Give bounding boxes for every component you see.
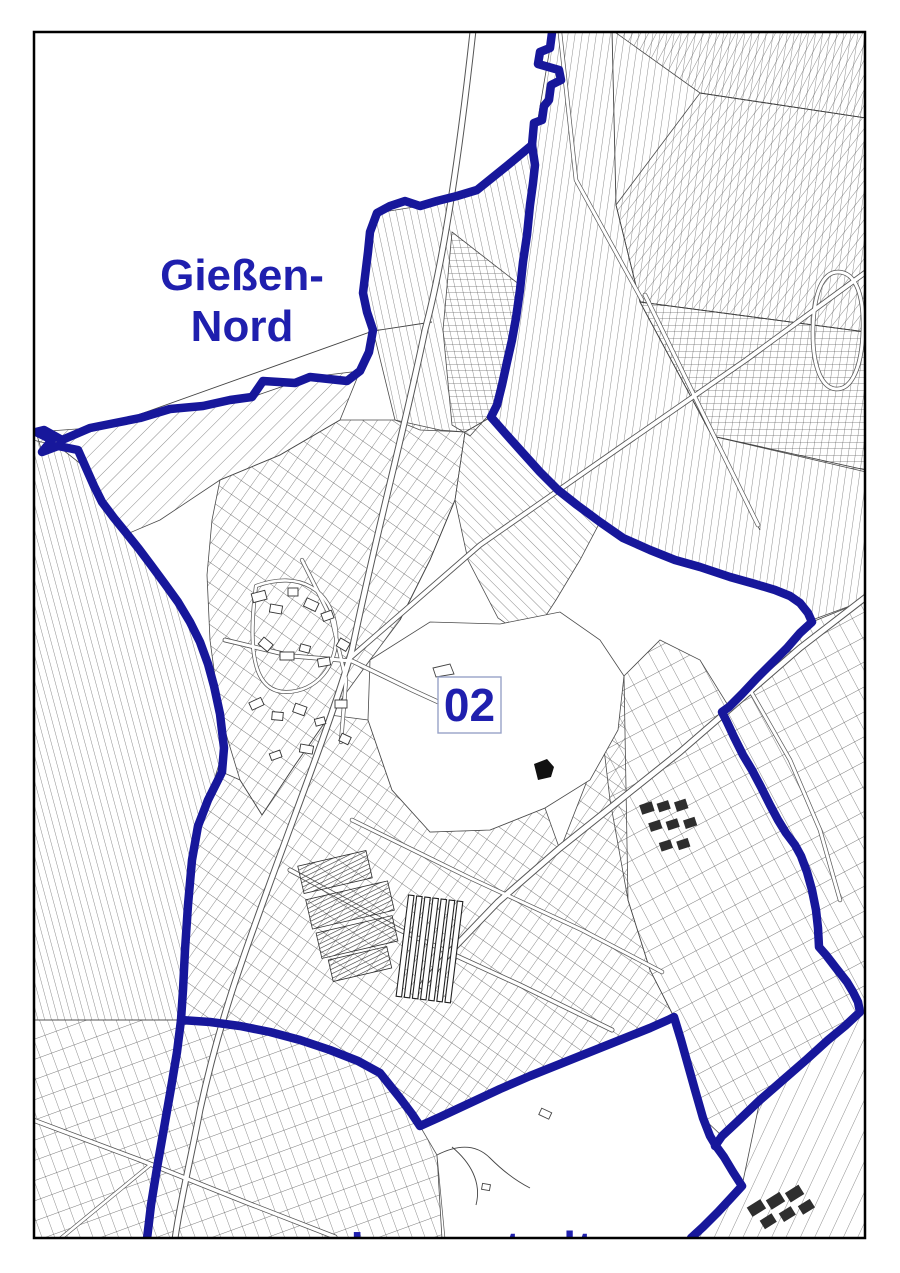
district-map: Gießen- Nord 02 Innenstadt [0, 0, 900, 1273]
district-label-giessen-nord-line1: Gießen- [160, 251, 324, 300]
map-page: Gießen- Nord 02 Innenstadt [0, 0, 900, 1273]
district-number-box: 02 [438, 677, 501, 733]
park-structure [482, 1183, 491, 1190]
district-label-giessen-nord-line2: Nord [191, 302, 294, 351]
district-number-label: 02 [444, 679, 495, 731]
